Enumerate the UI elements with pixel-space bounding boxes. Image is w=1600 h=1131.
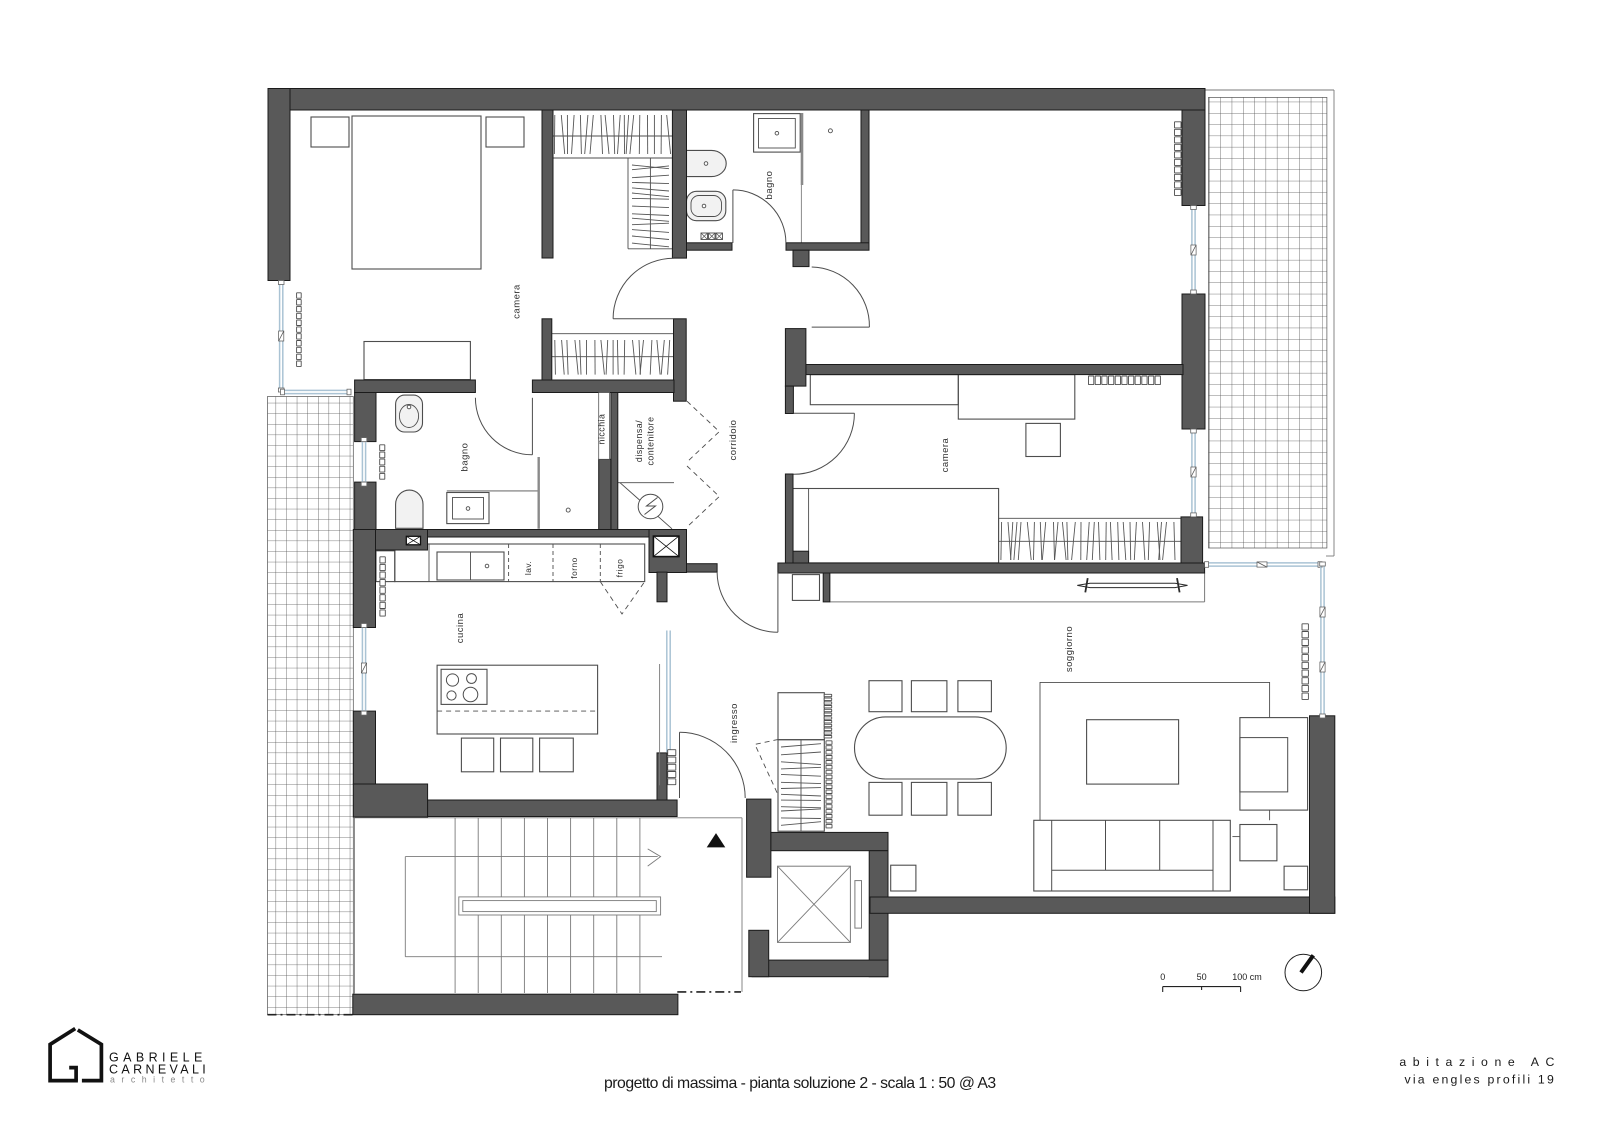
svg-text:camera: camera — [512, 284, 523, 319]
svg-text:camera: camera — [940, 437, 951, 472]
svg-text:progetto di massima - pianta s: progetto di massima - pianta soluzione 2… — [604, 1075, 996, 1092]
svg-text:dispensa/: dispensa/ — [634, 420, 644, 462]
svg-text:frigo: frigo — [615, 559, 625, 578]
svg-text:bagno: bagno — [764, 171, 775, 200]
svg-text:cucina: cucina — [455, 613, 466, 644]
svg-text:architetto: architetto — [110, 1075, 211, 1085]
svg-text:100 cm: 100 cm — [1232, 972, 1262, 982]
svg-text:soggiorno: soggiorno — [1064, 626, 1075, 672]
svg-text:nicchia: nicchia — [597, 414, 607, 445]
svg-text:via engles profili 19: via engles profili 19 — [1405, 1073, 1556, 1087]
svg-text:lav.: lav. — [523, 561, 533, 575]
svg-text:corridoio: corridoio — [728, 420, 739, 461]
svg-text:abitazione AC: abitazione AC — [1399, 1055, 1561, 1069]
svg-text:50: 50 — [1197, 972, 1207, 982]
svg-text:contenitore: contenitore — [646, 416, 656, 465]
svg-text:0: 0 — [1160, 972, 1165, 982]
svg-text:forno: forno — [569, 557, 579, 578]
svg-text:ingresso: ingresso — [729, 703, 740, 743]
svg-text:bagno: bagno — [460, 443, 471, 472]
